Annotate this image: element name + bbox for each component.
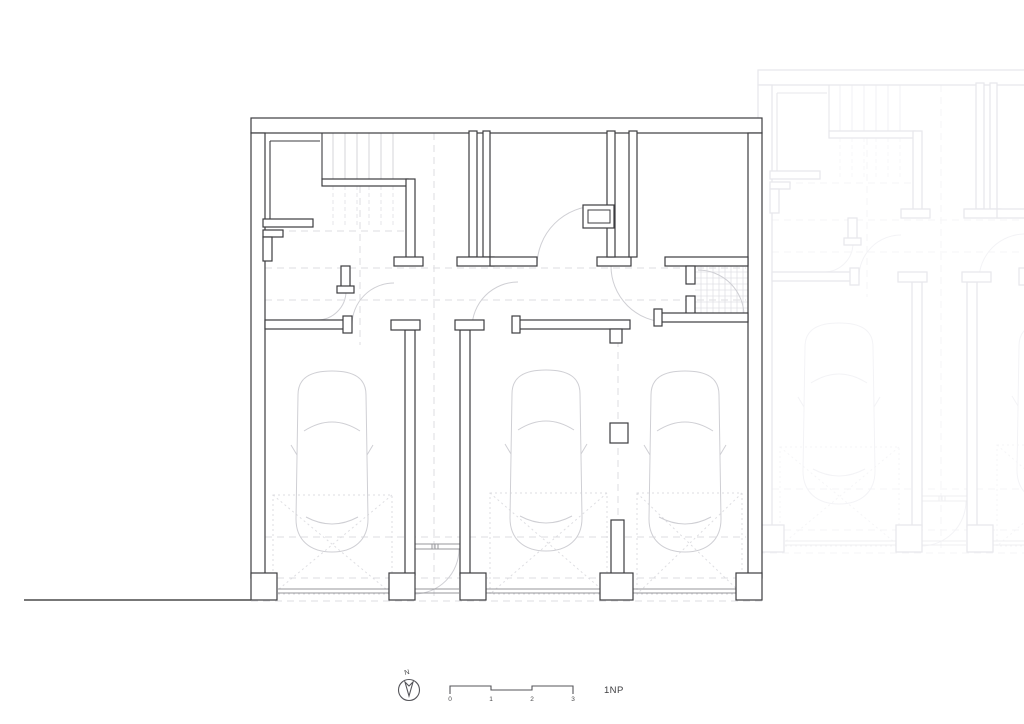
scale-tick-0: 0 <box>448 696 452 703</box>
scale-tick-1: 1 <box>489 696 493 703</box>
north-indicator: N <box>399 669 420 701</box>
scale-bar-line <box>450 686 573 694</box>
floor-label: 1NP <box>604 685 624 696</box>
scale-tick-2: 2 <box>530 696 534 703</box>
scale-bar: 0 1 2 3 <box>448 686 575 703</box>
floor-plan-page: N 0 1 2 3 1NP <box>0 0 1024 724</box>
scale-tick-3: 3 <box>571 696 575 703</box>
floor-plan-canvas: N 0 1 2 3 1NP <box>0 0 1024 724</box>
main-floor-plan <box>251 118 762 601</box>
north-label: N <box>404 669 411 677</box>
ghost-floor-plan <box>758 70 1024 553</box>
